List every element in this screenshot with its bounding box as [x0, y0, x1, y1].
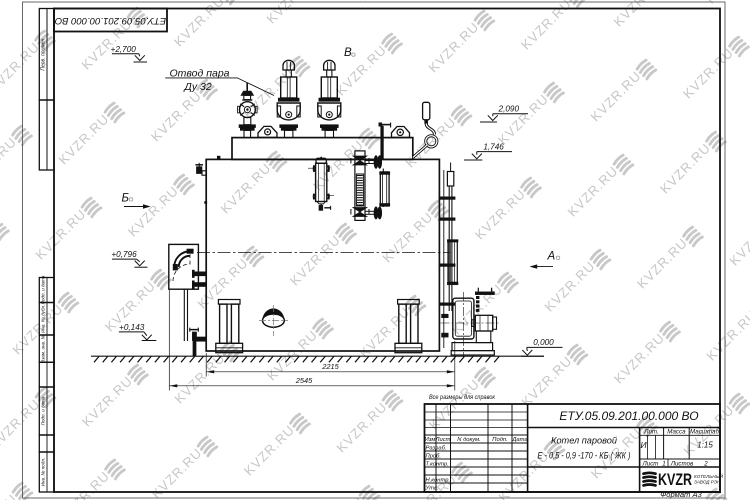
- svg-text:Все размеры для справок: Все размеры для справок: [429, 393, 496, 401]
- svg-text:Формат А3: Формат А3: [660, 490, 702, 499]
- svg-text:2545: 2545: [295, 376, 313, 385]
- svg-text:Н.контр.: Н.контр.: [426, 478, 451, 484]
- svg-text:N докум.: N докум.: [457, 437, 480, 443]
- svg-text:2: 2: [703, 460, 708, 467]
- svg-text:0,000: 0,000: [533, 338, 554, 347]
- svg-text:Масштаб: Масштаб: [690, 428, 719, 435]
- svg-text:Дата: Дата: [511, 437, 528, 443]
- svg-text:Е - 0,5 - 0,9 -170 - КБ ( ЖК ): Е - 0,5 - 0,9 -170 - КБ ( ЖК ): [538, 451, 631, 461]
- svg-text:2,090: 2,090: [498, 105, 520, 114]
- svg-text:+0,143: +0,143: [119, 323, 145, 332]
- svg-text:Лист: Лист: [435, 437, 451, 443]
- svg-text:КОТЕЛЬНЫЙ: КОТЕЛЬНЫЙ: [694, 472, 724, 479]
- svg-text:Инв. № дубл.: Инв. № дубл.: [41, 305, 46, 333]
- svg-text:Утв.: Утв.: [425, 486, 439, 492]
- svg-text:Перв. примен.: Перв. примен.: [41, 37, 47, 70]
- svg-text:Взам. инв. №: Взам. инв. №: [41, 334, 46, 362]
- svg-text:А: А: [547, 251, 556, 263]
- svg-text:Масса: Масса: [667, 428, 686, 435]
- svg-text:Инв. № подл.: Инв. № подл.: [41, 458, 46, 487]
- svg-text:Листов: Листов: [670, 460, 694, 467]
- svg-text:1,746: 1,746: [483, 143, 504, 152]
- svg-text:ЕТУ.05.09.201.00.000 ВО: ЕТУ.05.09.201.00.000 ВО: [54, 15, 166, 26]
- svg-text:Лит.: Лит.: [643, 428, 659, 435]
- svg-text:Б: Б: [122, 192, 130, 204]
- svg-text:ЗАВОД РЭН: ЗАВОД РЭН: [694, 480, 721, 485]
- svg-text:+2,700: +2,700: [111, 45, 137, 54]
- svg-text:2215: 2215: [321, 362, 339, 371]
- svg-text:И: И: [641, 440, 648, 450]
- svg-text:1: 1: [662, 460, 665, 467]
- svg-text:Изм: Изм: [425, 437, 436, 443]
- svg-text:Подп. и дата: Подп. и дата: [41, 275, 46, 304]
- svg-text:Котел паровой: Котел паровой: [551, 436, 617, 446]
- svg-text:KVZR: KVZR: [658, 471, 692, 489]
- svg-text:Проб.: Проб.: [426, 454, 442, 460]
- svg-text:Ду 32: Ду 32: [183, 81, 212, 93]
- svg-text:Подп.: Подп.: [492, 437, 507, 443]
- svg-text:Разраб.: Разраб.: [426, 446, 447, 452]
- svg-text:Лист: Лист: [642, 460, 659, 467]
- svg-text:Подп. и дата: Подп. и дата: [41, 396, 46, 425]
- svg-text:В: В: [344, 47, 352, 59]
- svg-text:+0,796: +0,796: [111, 250, 137, 259]
- svg-text:ЕТУ.05.09.201.00.000 ВО: ЕТУ.05.09.201.00.000 ВО: [559, 409, 698, 423]
- svg-text:Т.контр.: Т.контр.: [426, 462, 449, 468]
- svg-text:1:15: 1:15: [697, 441, 713, 450]
